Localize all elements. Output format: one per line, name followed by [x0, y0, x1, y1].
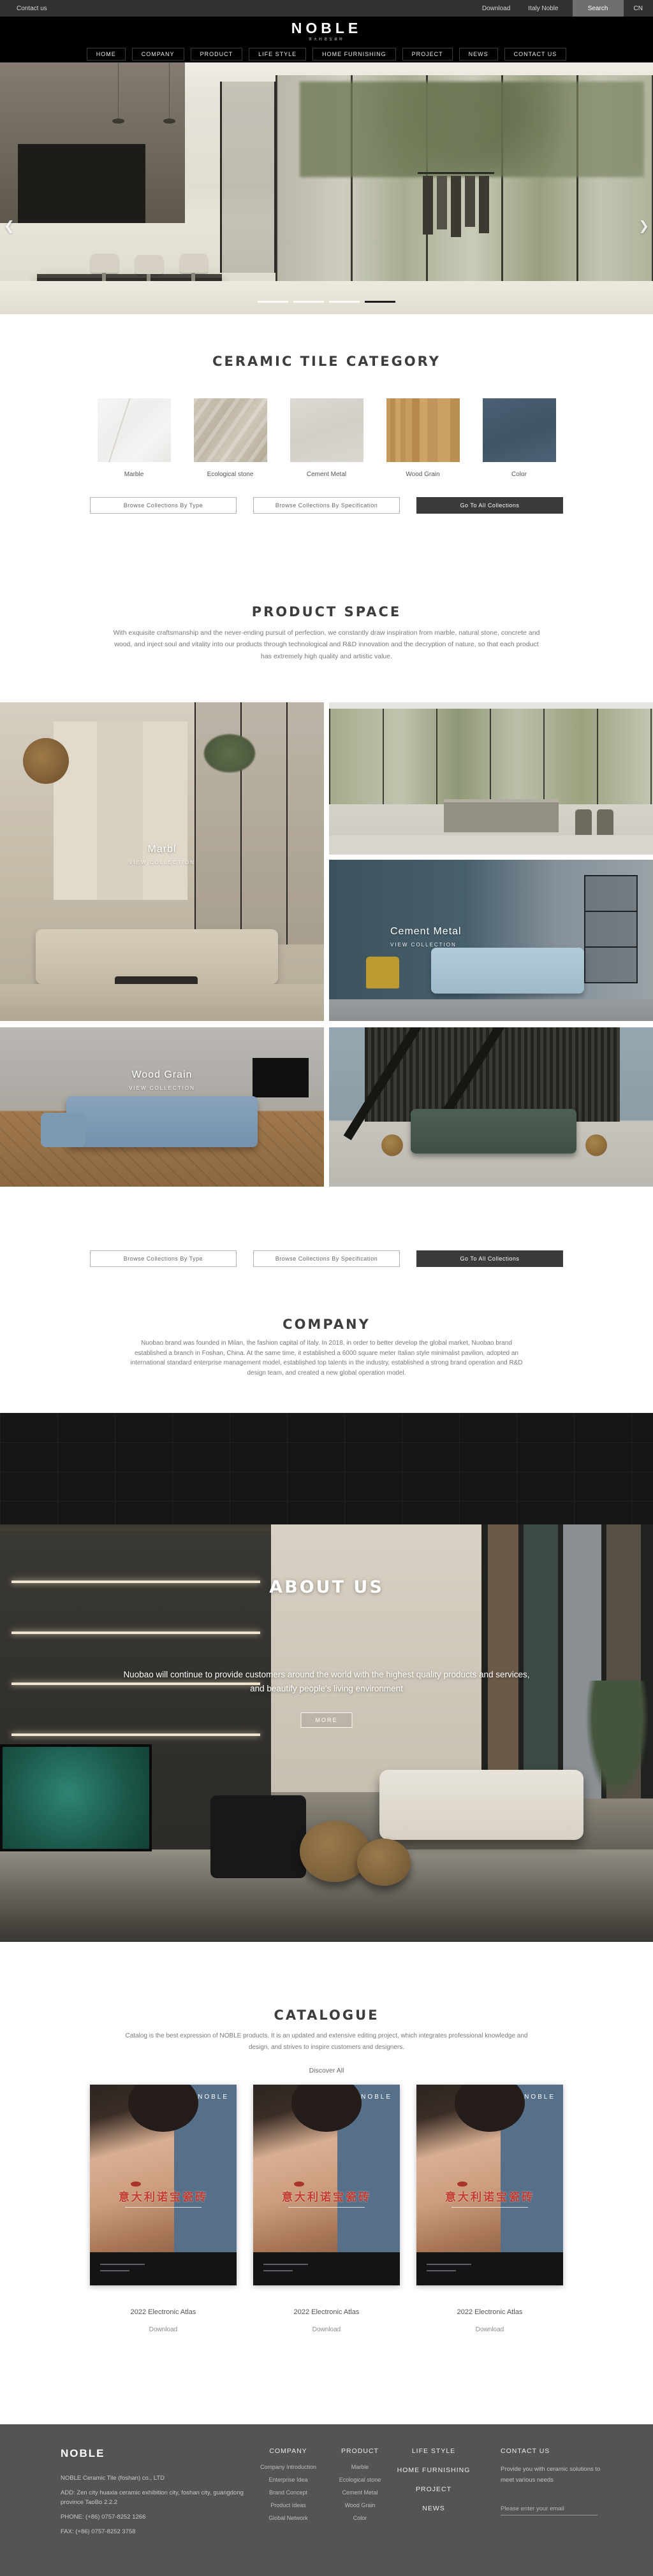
shelf-decor — [584, 875, 638, 983]
catalogue-item-title: 2022 Electronic Atlas — [416, 2308, 563, 2316]
nav-item-news[interactable]: NEWS — [459, 48, 498, 61]
noble-homepage: Contact us Download Italy Noble Search C… — [0, 0, 653, 2576]
side-table-decor — [381, 1134, 403, 1156]
footer-company-header[interactable]: COMPANY — [250, 2447, 326, 2455]
side-table-decor — [585, 1134, 607, 1156]
hero-greenery-decor — [300, 82, 644, 177]
catalogue-item: NOBLE 意大利诺宝瓷砖 2022 Electronic Atlas Down… — [416, 2085, 563, 2333]
hero-pagination — [0, 301, 653, 303]
product-space-section-header: PRODUCT SPACE With exquisite craftsmansh… — [0, 599, 653, 702]
nav-item-product[interactable]: PRODUCT — [191, 48, 243, 61]
footer-product-column: PRODUCT Marble Ecological stone Cement M… — [326, 2447, 393, 2528]
cover-chinese-title: 意大利诺宝瓷砖 — [416, 2188, 563, 2204]
browse-by-specification-button[interactable]: Browse Collections By Specification — [253, 497, 400, 514]
hero-pagination-bar-2[interactable] — [293, 301, 324, 303]
footer-link-brand-concept[interactable]: Brand Concept — [250, 2489, 326, 2496]
catalogue-item: NOBLE 意大利诺宝瓷砖 2022 Electronic Atlas Down… — [253, 2085, 400, 2333]
catalogue-section: CATALOGUE Catalog is the best expression… — [0, 1942, 653, 2424]
catalogue-item-title: 2022 Electronic Atlas — [90, 2308, 237, 2316]
footer-product-header[interactable]: PRODUCT — [326, 2447, 393, 2455]
about-us-line2: and beautify people's living environment — [0, 1682, 653, 1696]
footer-nav-column: LIFE STYLE HOME FURNISHING PROJECT NEWS — [395, 2447, 472, 2524]
category-label: Color — [483, 471, 556, 478]
catalogue-covers-row: NOBLE 意大利诺宝瓷砖 2022 Electronic Atlas Down… — [0, 2085, 653, 2333]
cover-chinese-title: 意大利诺宝瓷砖 — [253, 2188, 400, 2204]
hero-pagination-bar-1[interactable] — [258, 301, 288, 303]
category-label: Wood Grain — [386, 471, 460, 478]
category-label: Marble — [98, 471, 171, 478]
footer-contact-header[interactable]: CONTACT US — [501, 2447, 603, 2455]
catalogue-download-link[interactable]: Download — [416, 2326, 563, 2333]
ecological-stone-swatch[interactable] — [194, 398, 267, 462]
view-collection-link[interactable]: VIEW COLLECTION — [390, 942, 462, 948]
hero-fireplace-decor — [18, 144, 145, 223]
plant-decor — [204, 734, 255, 772]
footer-link-wood-grain[interactable]: Wood Grain — [326, 2502, 393, 2508]
noble-logo-subtitle: 意大利诺宝瓷砖 — [309, 37, 344, 41]
contact-us-link[interactable]: Contact us — [8, 5, 56, 12]
cover-chinese-title: 意大利诺宝瓷砖 — [90, 2188, 237, 2204]
search-button[interactable]: Search — [573, 0, 624, 17]
space-card-name: Cement Metal — [390, 926, 462, 937]
discover-all-link[interactable]: Discover All — [0, 2067, 653, 2074]
footer-link-global-network[interactable]: Global Network — [250, 2515, 326, 2521]
category-tile-ecological-stone: Ecological stone — [194, 398, 267, 478]
catalogue-title: CATALOGUE — [0, 1942, 653, 2023]
sofa-decor — [66, 1096, 258, 1147]
cement-metal-swatch[interactable] — [290, 398, 363, 462]
space-card-cement-metal[interactable]: Cement Metal VIEW COLLECTION — [329, 860, 653, 1021]
hero-slider: ❮ ❯ — [0, 62, 653, 314]
language-toggle-cn[interactable]: CN — [624, 5, 653, 12]
footer-address: ADD: Zen city huaxia ceramic exhibition … — [61, 2489, 258, 2507]
site-footer: NOBLE NOBLE Ceramic Tile (foshan) co., L… — [0, 2424, 653, 2576]
footer-link-enterprise-idea[interactable]: Enterprise Idea — [250, 2477, 326, 2483]
category-label: Ecological stone — [194, 471, 267, 478]
footer-link-home-furnishing[interactable]: HOME FURNISHING — [395, 2466, 472, 2474]
nav-item-project[interactable]: PROJECT — [402, 48, 453, 61]
footer-link-cement-metal[interactable]: Cement Metal — [326, 2489, 393, 2496]
hero-pendant-light — [169, 62, 170, 120]
catalogue-item-title: 2022 Electronic Atlas — [253, 2308, 400, 2316]
nav-item-life-style[interactable]: LIFE STYLE — [249, 48, 306, 61]
main-navigation: HOME COMPANY PRODUCT LIFE STYLE HOME FUR… — [0, 46, 653, 62]
go-to-all-collections-button[interactable]: Go To All Collections — [416, 1250, 563, 1267]
noble-logo[interactable]: NOBLE — [291, 21, 362, 36]
italy-noble-link[interactable]: Italy Noble — [519, 5, 567, 12]
catalogue-cover[interactable]: NOBLE 意大利诺宝瓷砖 — [90, 2085, 237, 2285]
footer-link-color[interactable]: Color — [326, 2515, 393, 2521]
category-tile-cement-metal: Cement Metal — [290, 398, 363, 478]
space-card-lounge[interactable] — [329, 1027, 653, 1187]
sofa-decor — [411, 1109, 576, 1154]
catalogue-cover[interactable]: NOBLE 意大利诺宝瓷砖 — [416, 2085, 563, 2285]
hero-floor-decor — [0, 281, 653, 314]
category-tile-wood-grain: Wood Grain — [386, 398, 460, 478]
browse-by-specification-button[interactable]: Browse Collections By Specification — [253, 1250, 400, 1267]
collection-buttons-row: Browse Collections By Type Browse Collec… — [0, 1187, 653, 1267]
ceramic-tile-category-section: CERAMIC TILE CATEGORY Marble Ecological … — [0, 314, 653, 599]
company-title: COMPANY — [0, 1300, 653, 1332]
category-tile-color: Color — [483, 398, 556, 478]
category-section-title: CERAMIC TILE CATEGORY — [0, 314, 653, 369]
footer-phone: PHONE: (+86) 0757-8252 1266 — [61, 2513, 258, 2522]
hero-stool-decor — [180, 254, 208, 273]
space-card-wood-grain[interactable]: Wood Grain VIEW COLLECTION — [0, 1027, 324, 1187]
catalogue-cover[interactable]: NOBLE 意大利诺宝瓷砖 — [253, 2085, 400, 2285]
hero-wall-decor — [0, 62, 185, 223]
marble-swatch[interactable] — [98, 398, 171, 462]
footer-contact-column: CONTACT US Provide you with ceramic solu… — [501, 2447, 603, 2515]
view-collection-link[interactable]: VIEW COLLECTION — [0, 1085, 324, 1091]
space-card-name: Wood Grain — [0, 1069, 324, 1081]
browse-by-type-button[interactable]: Browse Collections By Type — [90, 1250, 237, 1267]
footer-link-marble[interactable]: Marble — [326, 2464, 393, 2470]
about-us-line1: Nuobao will continue to provide customer… — [0, 1668, 653, 1682]
footer-link-company-introduction[interactable]: Company Introduction — [250, 2464, 326, 2470]
hero-glass-partition-decor — [220, 82, 276, 273]
footer-company-name: NOBLE Ceramic Tile (foshan) co., LTD — [61, 2474, 258, 2483]
nav-item-home-furnishing[interactable]: HOME FURNISHING — [312, 48, 396, 61]
wood-grain-swatch[interactable] — [386, 398, 460, 462]
sofa-decor — [431, 948, 584, 994]
footer-contact-blurb: Provide you with ceramic solutions to me… — [501, 2464, 603, 2486]
black-armchair-decor — [210, 1795, 306, 1878]
space-card-terrace[interactable] — [329, 702, 653, 855]
download-link[interactable]: Download — [473, 5, 519, 12]
white-sofa-decor — [379, 1770, 583, 1840]
hero-next-arrow-icon[interactable]: ❯ — [638, 218, 649, 234]
hero-prev-arrow-icon[interactable]: ❮ — [4, 218, 15, 234]
category-tile-marble: Marble — [98, 398, 171, 478]
catalogue-download-link[interactable]: Download — [90, 2326, 237, 2333]
color-swatch[interactable] — [483, 398, 556, 462]
wall-art-circle-decor — [23, 738, 69, 784]
about-us-title: ABOUT US — [0, 1577, 653, 1597]
footer-link-news[interactable]: NEWS — [395, 2505, 472, 2512]
newsletter-email-input[interactable] — [501, 2503, 598, 2515]
product-space-grid: Marbl VIEW COLLECTION Cement Metal VIEW … — [0, 702, 653, 1187]
footer-noble-logo: NOBLE — [61, 2447, 105, 2460]
footer-link-life-style[interactable]: LIFE STYLE — [395, 2447, 472, 2455]
site-header: NOBLE 意大利诺宝瓷砖 — [0, 17, 653, 46]
footer-link-project[interactable]: PROJECT — [395, 2486, 472, 2493]
browse-by-type-button[interactable]: Browse Collections By Type — [90, 497, 237, 514]
chair-decor — [366, 957, 399, 988]
category-tiles-row: Marble Ecological stone Cement Metal Woo… — [0, 398, 653, 478]
product-space-title: PRODUCT SPACE — [0, 599, 653, 619]
top-utility-bar: Contact us Download Italy Noble Search C… — [0, 0, 653, 17]
space-card-marble[interactable]: Marbl VIEW COLLECTION — [0, 702, 324, 1021]
hero-pagination-bar-4-active[interactable] — [365, 301, 395, 303]
tv-screen-decor — [0, 1744, 152, 1851]
showroom-ceiling-decor — [0, 1413, 653, 1524]
footer-fax: FAX: (+86) 0757-8252 3758 — [61, 2528, 258, 2536]
catalogue-download-link[interactable]: Download — [253, 2326, 400, 2333]
round-table-decor — [357, 1839, 411, 1886]
footer-link-ecological-stone[interactable]: Ecological stone — [326, 2477, 393, 2483]
cover-brand-text: NOBLE — [524, 2094, 555, 2101]
company-description: Nuobao brand was founded in Milan, the f… — [129, 1338, 524, 1378]
hero-pendant-light — [118, 62, 119, 120]
about-us-section: ABOUT US Nuobao will continue to provide… — [0, 1413, 653, 1942]
space-card-name: Marbl — [0, 844, 324, 855]
cover-brand-text: NOBLE — [198, 2094, 229, 2101]
category-label: Cement Metal — [290, 471, 363, 478]
product-space-description: With exquisite craftsmanship and the nev… — [110, 627, 543, 662]
about-more-button[interactable]: MORE — [301, 1712, 353, 1728]
collection-buttons-row: Browse Collections By Type Browse Collec… — [0, 497, 653, 514]
nav-item-contact-us[interactable]: CONTACT US — [504, 48, 567, 61]
view-collection-link[interactable]: VIEW COLLECTION — [0, 860, 324, 865]
footer-link-product-ideas[interactable]: Product Ideas — [250, 2502, 326, 2508]
catalogue-item: NOBLE 意大利诺宝瓷砖 2022 Electronic Atlas Down… — [90, 2085, 237, 2333]
footer-company-column: COMPANY Company Introduction Enterprise … — [250, 2447, 326, 2528]
hero-clothes-rack-decor — [418, 172, 494, 274]
hero-stool-decor — [135, 255, 163, 274]
plant-decor — [585, 1681, 649, 1802]
cover-brand-text: NOBLE — [361, 2094, 392, 2101]
nav-item-home[interactable]: HOME — [87, 48, 126, 61]
hero-pagination-bar-3[interactable] — [329, 301, 360, 303]
go-to-all-collections-button[interactable]: Go To All Collections — [416, 497, 563, 514]
catalogue-description: Catalog is the best expression of NOBLE … — [119, 2030, 534, 2053]
product-space-buttons-section: Browse Collections By Type Browse Collec… — [0, 1187, 653, 1300]
hero-stool-decor — [91, 254, 119, 273]
company-section: COMPANY Nuobao brand was founded in Mila… — [0, 1300, 653, 1413]
nav-item-company[interactable]: COMPANY — [132, 48, 184, 61]
